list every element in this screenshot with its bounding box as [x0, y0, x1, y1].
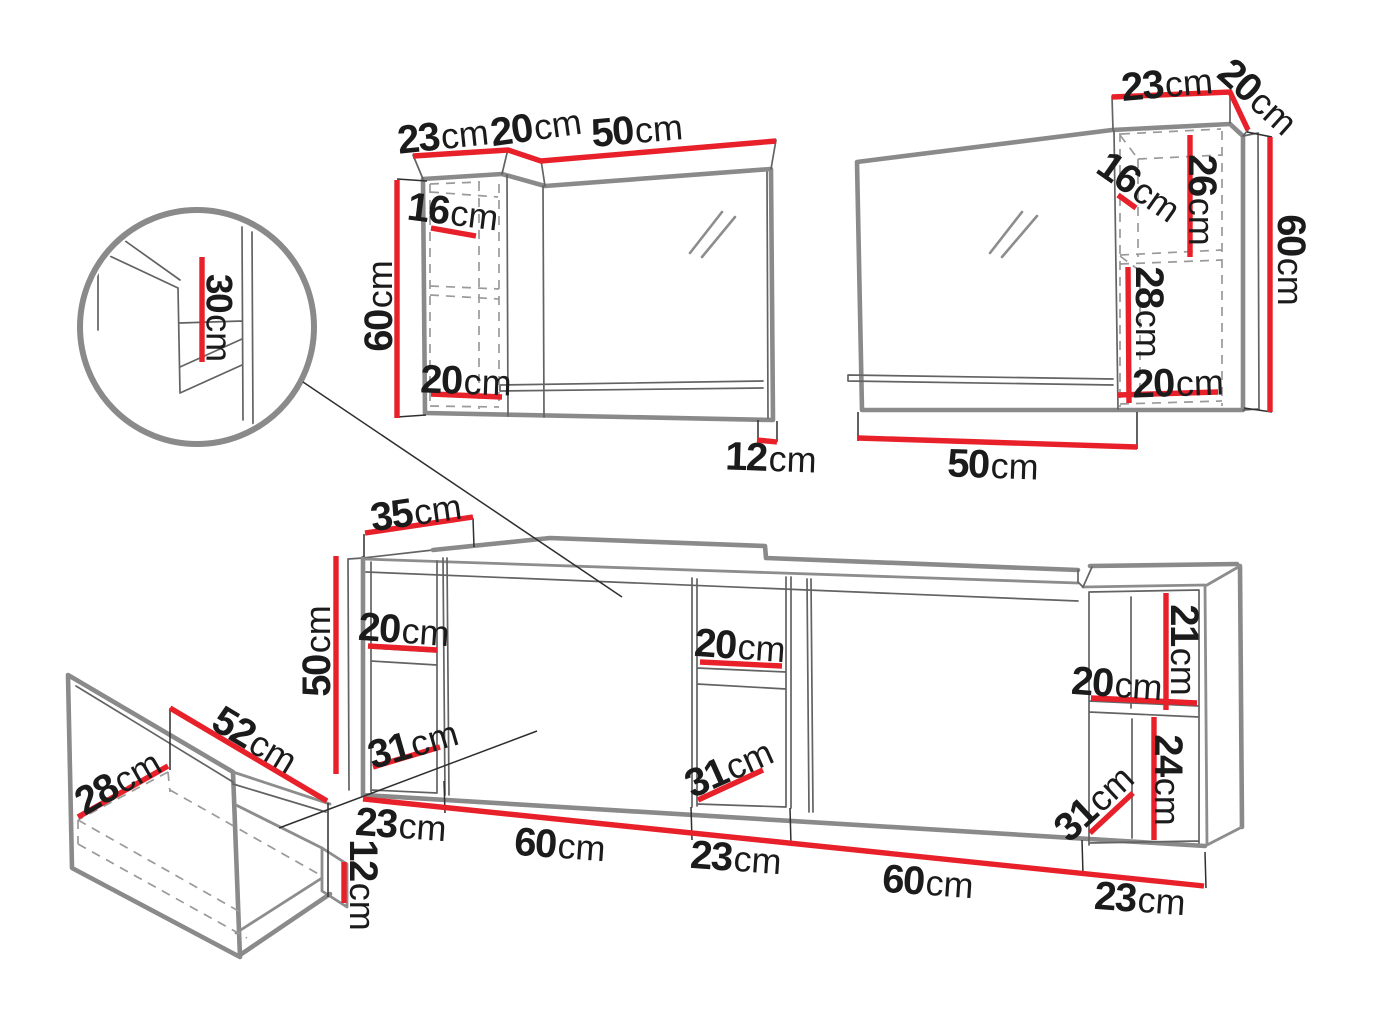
drawer-detail-drawing [68, 675, 347, 957]
wall-cabinet-right-side-strip [1243, 133, 1259, 410]
drawer-front-rim [236, 805, 322, 848]
dim-label-wall-left-height: 60cm [359, 260, 399, 352]
dim-label-drawer-front-height: 12cm [343, 839, 383, 931]
dim-label-wall-right-lower-height: 28cm [1129, 266, 1169, 358]
line-art [0, 0, 1376, 1032]
dim-label-base-mid-shelf: 20cm [693, 623, 787, 669]
dim-label-wall-left-overhang: 12cm [725, 436, 818, 479]
dim-label-base-left-shelf: 20cm [357, 607, 451, 653]
dim-label-wall-left-top-width: 50cm [590, 106, 685, 154]
corner-detail-circle [80, 210, 314, 444]
dim-label-base-right-lower: 24cm [1148, 734, 1188, 826]
dim-label-base-right-upper: 21cm [1164, 604, 1204, 696]
dim-label-base-right-shelf: 20cm [1070, 661, 1164, 707]
dim-label-wall-right-top-depth: 23cm [1120, 60, 1215, 108]
diagram-canvas: 23cm 20cm 50cm 16cm 60cm 20cm 12cm 23cm … [0, 0, 1376, 1032]
dim-label-base-width-4: 60cm [881, 859, 975, 905]
dim-label-base-width-2: 60cm [513, 822, 607, 868]
dim-label-base-height: 50cm [297, 605, 337, 697]
dim-label-base-width-3: 23cm [689, 835, 783, 881]
dim-label-wall-right-width: 50cm [947, 443, 1040, 486]
dim-label-base-width-5: 23cm [1093, 876, 1187, 922]
corner-detail-drawing [80, 210, 314, 444]
dim-label-wall-left-top-depth: 23cm [395, 111, 490, 160]
dim-label-wall-right-bottom: 20cm [1132, 361, 1225, 404]
dim-label-wall-right-height: 60cm [1271, 214, 1311, 306]
dim-label-wall-left-bottom: 20cm [420, 359, 513, 402]
dim-label-corner-depth: 30cm [201, 274, 238, 362]
dim-label-wall-right-upper-height: 26cm [1182, 154, 1222, 246]
